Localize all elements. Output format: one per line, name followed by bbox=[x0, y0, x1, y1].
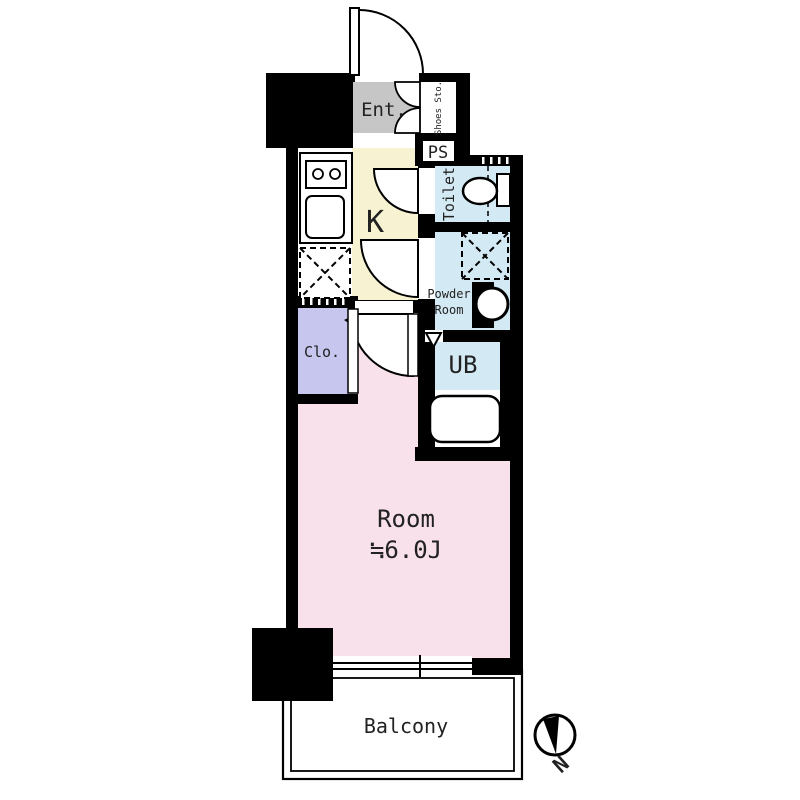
closet-label: Clo. bbox=[304, 343, 340, 361]
main-room-label: Room bbox=[377, 505, 435, 533]
entrance-door-leaf bbox=[350, 8, 359, 75]
main-room-size-label: ≒6.0J bbox=[370, 536, 442, 564]
closet-sliding-door bbox=[348, 309, 358, 393]
balcony-window bbox=[333, 655, 472, 677]
compass-north-label: N bbox=[548, 751, 573, 777]
toilet-label: Toilet bbox=[440, 167, 458, 221]
basin bbox=[476, 288, 508, 320]
shoe-storage-label: Shoes Sto. bbox=[434, 81, 444, 135]
powder-room-label-line1: Powder bbox=[427, 287, 470, 301]
entrance-door-arc bbox=[359, 10, 423, 74]
powder-room-label-line2: Room bbox=[435, 303, 464, 317]
floor-plan-drawing: Ent. Shoes Sto. PS Toilet K Powder Room … bbox=[0, 0, 800, 800]
entrance-label: Ent. bbox=[361, 99, 407, 121]
kitchen-sink bbox=[306, 196, 344, 238]
toilet-tank bbox=[497, 174, 510, 206]
bathtub bbox=[430, 396, 500, 442]
main-room-door-leaf bbox=[408, 314, 418, 376]
stove-burner-left bbox=[313, 169, 323, 179]
north-indicator: N bbox=[535, 715, 575, 778]
kitchen-label: K bbox=[366, 205, 384, 240]
stove-burner-right bbox=[330, 169, 340, 179]
toilet-bowl bbox=[463, 178, 497, 204]
balcony-label: Balcony bbox=[364, 714, 448, 738]
pipe-space-label: PS bbox=[428, 143, 448, 163]
unit-bath-label: UB bbox=[449, 351, 478, 379]
floor-plan-page: Ent. Shoes Sto. PS Toilet K Powder Room … bbox=[0, 0, 800, 800]
refrigerator-space bbox=[300, 248, 350, 298]
